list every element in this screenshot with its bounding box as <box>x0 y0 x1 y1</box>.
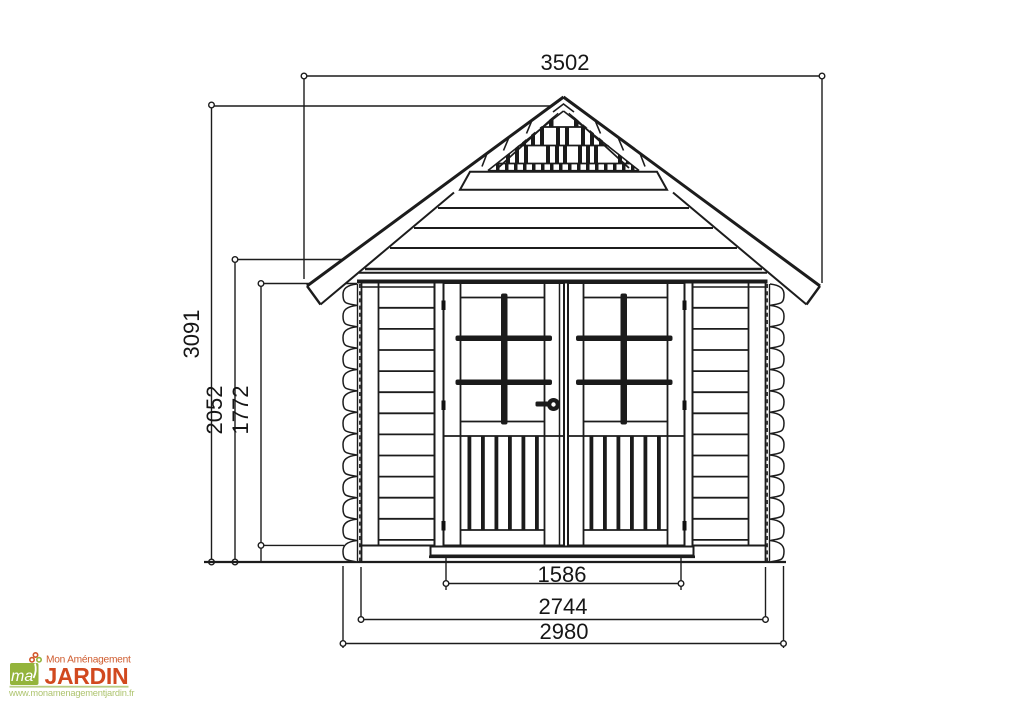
svg-text:2744: 2744 <box>539 594 588 619</box>
svg-text:2052: 2052 <box>202 386 227 435</box>
svg-text:www.monamenagementjardin.fr: www.monamenagementjardin.fr <box>8 688 134 698</box>
svg-text:3091: 3091 <box>179 310 204 359</box>
svg-text:3502: 3502 <box>541 50 590 75</box>
svg-text:1586: 1586 <box>538 562 587 587</box>
svg-text:2980: 2980 <box>540 619 589 644</box>
svg-text:1772: 1772 <box>228 386 253 435</box>
svg-text:JARDIN: JARDIN <box>45 663 129 689</box>
svg-text:ma: ma <box>11 668 33 685</box>
